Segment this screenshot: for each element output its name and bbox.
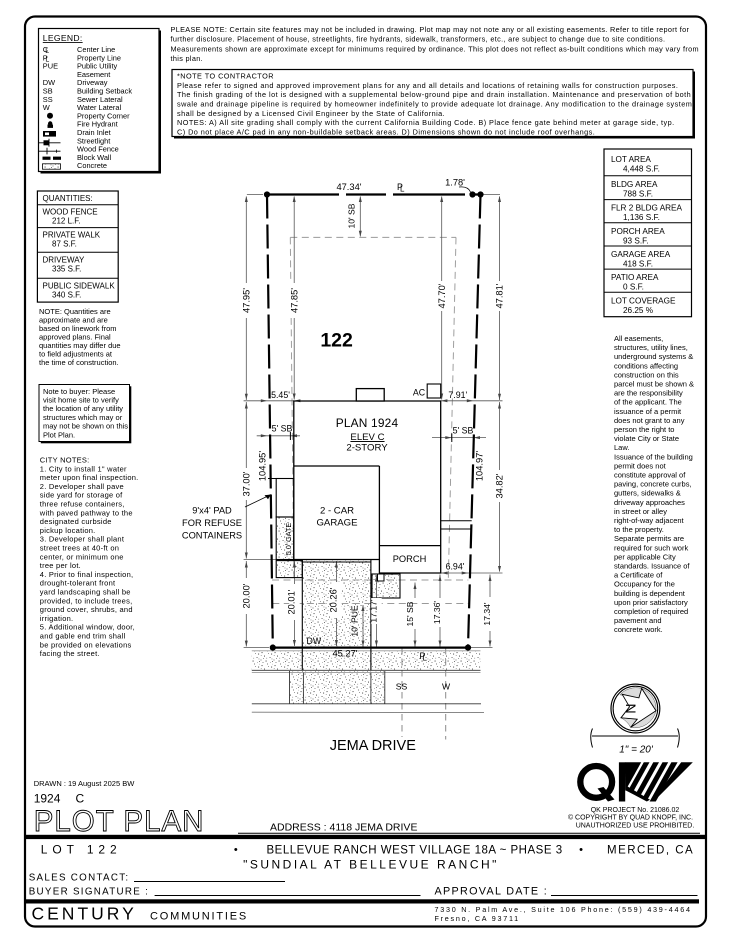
svg-text:335 S.F.: 335 S.F.: [52, 265, 81, 274]
svg-text:pavement and: pavement and: [614, 616, 662, 625]
svg-text:standards. Issuance of: standards. Issuance of: [614, 562, 690, 571]
svg-text:Note to buyer: Please: Note to buyer: Please: [43, 387, 115, 396]
svg-text:COMMUNITIES: COMMUNITIES: [150, 911, 248, 923]
svg-text:4,448 S.F.: 4,448 S.F.: [623, 165, 660, 174]
svg-text:The finish grading of the lot: The finish grading of the lot is designe…: [177, 90, 691, 99]
svg-text:CENTURY: CENTURY: [32, 904, 137, 924]
svg-text:Please refer to signed and app: Please refer to signed and approved impr…: [177, 81, 678, 90]
svg-text:drought-tolerant front: drought-tolerant front: [40, 579, 116, 588]
svg-text:10' PUE: 10' PUE: [350, 605, 360, 637]
svg-text:26.25 %: 26.25 %: [623, 306, 653, 315]
svg-text:building is dependent: building is dependent: [614, 589, 686, 598]
svg-text:788 S.F.: 788 S.F.: [623, 190, 653, 199]
svg-text:visit home site to verify: visit home site to verify: [43, 396, 119, 405]
svg-text:concrete work.: concrete work.: [614, 625, 663, 634]
svg-text:tree per lot.: tree per lot.: [40, 561, 81, 570]
svg-text:W: W: [442, 682, 451, 692]
svg-text:1" = 20': 1" = 20': [619, 745, 654, 756]
svg-text:BLDG AREA: BLDG AREA: [611, 180, 658, 189]
svg-text:Concrete: Concrete: [77, 161, 107, 170]
svg-text:3. Developer shall plant: 3. Developer shall plant: [40, 535, 125, 544]
svg-text:person the right to: person the right to: [614, 425, 674, 434]
svg-text:5. Additional window, door,: 5. Additional window, door,: [40, 623, 135, 632]
svg-text:Fresno, CA 93711: Fresno, CA 93711: [435, 914, 520, 923]
svg-text:GARAGE: GARAGE: [316, 518, 357, 529]
svg-text:structures which may or: structures which may or: [43, 413, 123, 422]
svg-text:the time of construction.: the time of construction.: [39, 358, 119, 367]
svg-text:swale and drainage pipeline is: swale and drainage pipeline is required …: [177, 100, 692, 109]
svg-text:Issuance of the building: Issuance of the building: [614, 452, 693, 461]
svg-text:All easements,: All easements,: [614, 334, 663, 343]
svg-text:5.45': 5.45': [271, 390, 290, 400]
svg-text:Occupancy for the: Occupancy for the: [614, 580, 675, 589]
svg-text:1.78': 1.78': [445, 178, 465, 188]
svg-text:7.91': 7.91': [448, 390, 467, 400]
svg-text:122: 122: [320, 330, 353, 352]
svg-text:BUYER SIGNATURE :: BUYER SIGNATURE :: [29, 887, 149, 898]
svg-text:SALES CONTACT:: SALES CONTACT:: [29, 873, 130, 884]
svg-text:parcel must be shown &: parcel must be shown &: [614, 380, 694, 389]
svg-text:ground cover, shrubs, and: ground cover, shrubs, and: [40, 605, 133, 614]
svg-text:FLR 2 BLDG AREA: FLR 2 BLDG AREA: [611, 204, 683, 213]
svg-text:PRIVATE WALK: PRIVATE WALK: [43, 231, 101, 240]
svg-text:structures, utility lines,: structures, utility lines,: [614, 343, 688, 352]
svg-text:87 S.F.: 87 S.F.: [52, 240, 77, 249]
svg-text:5.0' GATE: 5.0' GATE: [284, 523, 293, 556]
svg-text:10' SB: 10' SB: [347, 203, 357, 228]
svg-text:Separate permits are: Separate permits are: [614, 534, 684, 543]
svg-text:W: W: [43, 103, 50, 112]
svg-text:BELLEVUE RANCH WEST VILLAGE 18: BELLEVUE RANCH WEST VILLAGE 18A ~ PHASE …: [267, 845, 563, 857]
svg-text:gutters, sidewalks &: gutters, sidewalks &: [614, 489, 681, 498]
svg-text:construction on this: construction on this: [614, 370, 679, 379]
svg-text:upon prior satisfactory: upon prior satisfactory: [614, 598, 688, 607]
svg-text:further disclosure. Placement: further disclosure. Placement of house, …: [171, 35, 666, 44]
svg-text:completion of required: completion of required: [614, 607, 688, 616]
svg-text:in street or alley: in street or alley: [614, 507, 667, 516]
svg-text:center, or minimum one: center, or minimum one: [40, 552, 124, 561]
svg-text:340 S.F.: 340 S.F.: [52, 291, 81, 300]
svg-text:Plot Plan.: Plot Plan.: [43, 430, 75, 439]
svg-text:1. City to install 1" water: 1. City to install 1" water: [40, 464, 127, 473]
svg-text:QUANTITIES:: QUANTITIES:: [43, 194, 93, 203]
svg-text:PUBLIC SIDEWALK: PUBLIC SIDEWALK: [43, 282, 116, 291]
svg-text:104.95': 104.95': [258, 451, 268, 481]
svg-text:5' SB: 5' SB: [453, 425, 474, 435]
svg-text:20.26': 20.26': [329, 587, 339, 612]
svg-text:5' SB: 5' SB: [272, 424, 293, 434]
svg-text:facing the street.: facing the street.: [40, 649, 100, 658]
svg-text:20.00': 20.00': [242, 583, 252, 608]
svg-text:*NOTE TO CONTRACTOR: *NOTE TO CONTRACTOR: [177, 72, 274, 81]
svg-text:LOT AREA: LOT AREA: [611, 155, 651, 164]
svg-text:Law.: Law.: [614, 443, 629, 452]
svg-text:MERCED, CA: MERCED, CA: [607, 845, 694, 857]
svg-text:be provided on elevations: be provided on elevations: [40, 640, 132, 649]
svg-text:are the responsibility: are the responsibility: [614, 389, 683, 398]
svg-text:pickup location.: pickup location.: [40, 526, 96, 535]
svg-text:Measurements shown are approxi: Measurements shown are approximate excep…: [171, 44, 699, 53]
svg-text:47.81': 47.81': [495, 283, 505, 308]
svg-text:GARAGE AREA: GARAGE AREA: [611, 250, 671, 259]
svg-text:47.70': 47.70': [437, 283, 447, 308]
svg-text:C) Do not place A/C pad in any: C) Do not place A/C pad in any non-build…: [177, 127, 595, 136]
svg-text:provided, to include trees,: provided, to include trees,: [40, 596, 133, 605]
svg-text:right-of-way adjacent: right-of-way adjacent: [614, 516, 685, 525]
svg-text:C: C: [76, 792, 85, 806]
svg-text:irrigation.: irrigation.: [40, 614, 74, 623]
svg-text:L: L: [423, 654, 428, 663]
svg-text:•: •: [234, 844, 238, 856]
svg-text:QK PROJECT No. 21086.02: QK PROJECT No. 21086.02: [591, 807, 680, 814]
svg-text:418 S.F.: 418 S.F.: [623, 260, 653, 269]
svg-text:NOTES: A) All site grading s: NOTES: A) All site grading shall comply …: [177, 118, 675, 127]
svg-text:yard landscaping shall be: yard landscaping shall be: [40, 588, 131, 597]
svg-text:LOT COVERAGE: LOT COVERAGE: [611, 296, 676, 305]
svg-text:LOT 122: LOT 122: [41, 843, 122, 857]
svg-text:with paved pathway to the: with paved pathway to the: [39, 508, 133, 517]
svg-text:driveway approaches: driveway approaches: [614, 498, 685, 507]
svg-text:7330 N. Palm Ave., Suite 106: 7330 N. Palm Ave., Suite 106 Phone: (559…: [435, 905, 692, 914]
svg-text:three refuse containers,: three refuse containers,: [40, 500, 125, 509]
svg-text:4. Prior to final inspection,: 4. Prior to final inspection,: [40, 570, 134, 579]
svg-text:shall be designed by a License: shall be designed by a Licensed Civil En…: [177, 109, 445, 118]
svg-text:meter upon final inspection.: meter upon final inspection.: [40, 473, 139, 482]
svg-text:SS: SS: [396, 682, 408, 692]
svg-text:FOR REFUSE: FOR REFUSE: [182, 518, 242, 528]
svg-text:47.85': 47.85': [289, 288, 299, 313]
svg-text:47.95': 47.95': [242, 288, 252, 313]
svg-text:1924: 1924: [34, 792, 61, 806]
svg-text:2. Developer shall pave: 2. Developer shall pave: [40, 482, 124, 491]
svg-text:212 L.F.: 212 L.F.: [52, 217, 80, 226]
svg-text:the location of any utility: the location of any utility: [43, 404, 123, 413]
svg-text:20.01': 20.01': [287, 589, 297, 614]
svg-text:violate City or State: violate City or State: [614, 434, 679, 443]
svg-text:AC: AC: [413, 388, 426, 398]
svg-text:PLAN 1924: PLAN 1924: [336, 416, 399, 430]
svg-text:JEMA DRIVE: JEMA DRIVE: [330, 738, 417, 754]
svg-text:N: N: [622, 703, 638, 713]
svg-text:PLEASE NOTE: Certain site fea: PLEASE NOTE: Certain site features may n…: [171, 25, 690, 34]
svg-text:side yard for storage of: side yard for storage of: [40, 491, 123, 500]
svg-text:CITY NOTES:: CITY NOTES:: [40, 456, 90, 465]
svg-text:PORCH AREA: PORCH AREA: [611, 227, 665, 236]
svg-text:45.27': 45.27': [332, 649, 357, 659]
svg-text:1,136 S.F.: 1,136 S.F.: [623, 213, 660, 222]
svg-text:underground systems &: underground systems &: [614, 352, 693, 361]
svg-text:to the property.: to the property.: [614, 525, 664, 534]
svg-text:ELEV C: ELEV C: [350, 432, 384, 443]
svg-text:street trees at 40-ft on: street trees at 40-ft on: [40, 544, 119, 553]
svg-text:and gable end trim shall: and gable end trim shall: [40, 632, 126, 641]
svg-text:15' SB: 15' SB: [405, 601, 415, 626]
svg-text:93 S.F.: 93 S.F.: [623, 236, 649, 245]
svg-text:issuance of a permit: issuance of a permit: [614, 407, 682, 416]
svg-text:permit does not: permit does not: [614, 461, 667, 470]
svg-text:104.97': 104.97': [474, 451, 484, 481]
svg-text:34.82': 34.82': [495, 473, 505, 498]
svg-text:of the applicant. The: of the applicant. The: [614, 398, 682, 407]
svg-text:47.34': 47.34': [336, 182, 361, 192]
svg-text:required for such work: required for such work: [614, 543, 688, 552]
svg-text:2-STORY: 2-STORY: [346, 443, 388, 454]
svg-text:APPROVAL DATE :: APPROVAL DATE :: [435, 886, 549, 898]
svg-text:DRAWN : 19 August 2025 BW: DRAWN : 19 August 2025 BW: [34, 779, 136, 788]
svg-text:DW: DW: [307, 636, 322, 646]
svg-text:this plan.: this plan.: [171, 54, 204, 63]
svg-text:6.94': 6.94': [446, 562, 465, 572]
svg-text:17.17': 17.17': [369, 599, 379, 623]
svg-text:conditions affecting: conditions affecting: [614, 361, 678, 370]
svg-text:designated curbside: designated curbside: [40, 517, 112, 526]
svg-text:PLOT PLAN: PLOT PLAN: [34, 805, 205, 838]
svg-text:17.36': 17.36': [432, 601, 442, 625]
svg-text:WOOD FENCE: WOOD FENCE: [43, 208, 98, 217]
svg-text:0 S.F.: 0 S.F.: [623, 283, 644, 292]
svg-text:2 - CAR: 2 - CAR: [320, 506, 354, 517]
svg-text:UNAUTHORIZED USE PROHIBITED.: UNAUTHORIZED USE PROHIBITED.: [576, 822, 695, 829]
svg-text:DRIVEWAY: DRIVEWAY: [43, 256, 85, 265]
svg-text:L: L: [400, 185, 405, 194]
svg-text:constitute approval of: constitute approval of: [614, 471, 686, 480]
svg-text:9'x4' PAD: 9'x4' PAD: [192, 506, 232, 516]
svg-text:ADDRESS : 4118 JEMA DRIVE: ADDRESS : 4118 JEMA DRIVE: [270, 822, 417, 834]
svg-text:37.00': 37.00': [242, 471, 252, 496]
svg-text:a Certificate of: a Certificate of: [614, 571, 663, 580]
svg-text:17.34': 17.34': [482, 602, 492, 626]
svg-text:PORCH: PORCH: [393, 554, 427, 564]
svg-text:does not grant to any: does not grant to any: [614, 416, 685, 425]
svg-text:© COPYRIGHT BY QUAD KNOPF, INC: © COPYRIGHT BY QUAD KNOPF, INC.: [568, 814, 693, 822]
svg-text:•: •: [579, 844, 583, 856]
svg-text:may not be shown on this: may not be shown on this: [43, 422, 128, 431]
svg-text:CONTAINERS: CONTAINERS: [182, 531, 242, 541]
svg-text:PATIO AREA: PATIO AREA: [611, 273, 659, 282]
svg-text:paving, concrete curbs,: paving, concrete curbs,: [614, 480, 692, 489]
svg-text:PUE: PUE: [43, 62, 58, 71]
svg-text:LEGEND:: LEGEND:: [43, 33, 83, 43]
svg-text:per applicable City: per applicable City: [614, 552, 676, 561]
svg-text:"SUNDIAL AT BELLEVUE RANCH": "SUNDIAL AT BELLEVUE RANCH": [243, 858, 499, 872]
